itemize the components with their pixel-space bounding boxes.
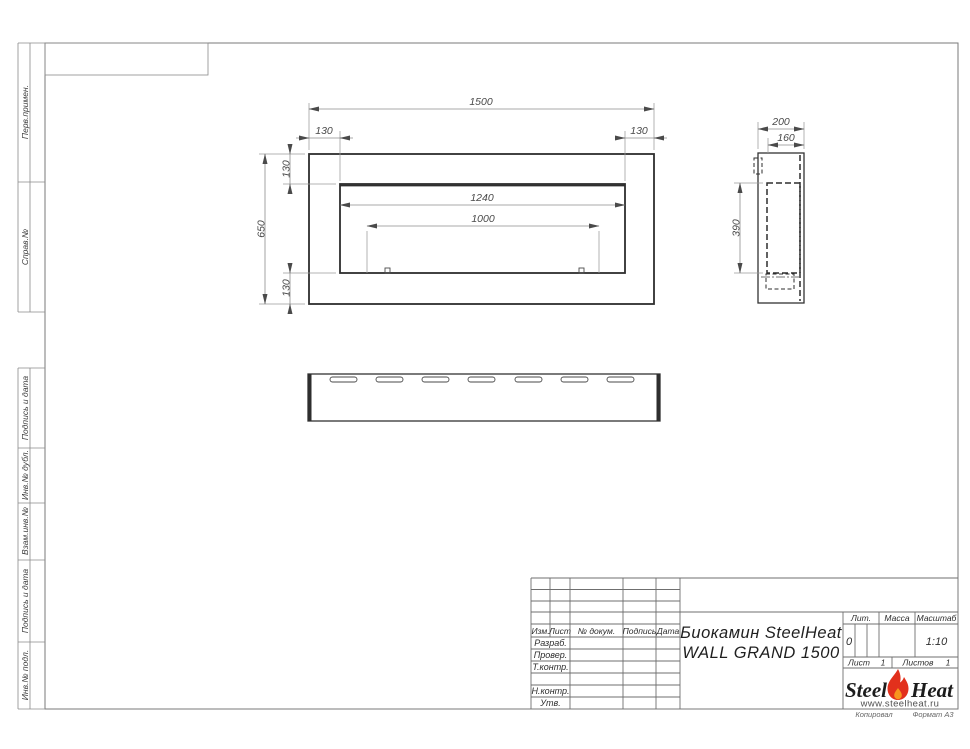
dim-front-width: 1500 xyxy=(309,96,654,150)
drawing-sheet: Перв.примен. Справ.№ Подпись и дата Инв.… xyxy=(0,0,970,749)
document-name-line2: WALL GRAND 1500 xyxy=(682,644,840,662)
dim-front-opening-width-value: 1240 xyxy=(470,192,494,204)
tb-sheets-label: Листов xyxy=(902,658,935,668)
dim-front-height-value: 650 xyxy=(256,220,268,238)
dim-front-inset-left-value: 130 xyxy=(315,125,333,137)
steelheat-logo: Steel Heat www.steelheat.ru xyxy=(845,669,954,710)
front-view: 1500 130 130 650 1 xyxy=(256,96,668,311)
strip-label-sprav-no: Справ.№ xyxy=(20,229,30,265)
vent-slot xyxy=(376,377,403,382)
side-outer-contour xyxy=(758,153,804,303)
drawing-canvas: Перв.примен. Справ.№ Подпись и дата Инв.… xyxy=(0,0,970,749)
strip-label-inv-podl: Инв.№ подл. xyxy=(20,650,30,700)
tb-sheet-label: Лист xyxy=(847,658,870,668)
dim-front-opening-width: 1240 xyxy=(340,192,625,205)
tb-lit-value: 0 xyxy=(846,636,853,648)
dim-front-inset-right-value: 130 xyxy=(630,125,648,137)
tb-header-data: Дата xyxy=(656,626,680,636)
vent-slot xyxy=(607,377,634,382)
tb-row-nkontr: Н.контр. xyxy=(531,686,569,696)
side-hidden-opening xyxy=(767,183,800,273)
vent-slot xyxy=(468,377,495,382)
tb-row-razrab: Разраб. xyxy=(534,638,567,648)
flame-icon xyxy=(888,669,909,700)
dim-front-inset-bottom-value: 130 xyxy=(281,279,293,297)
side-view: 200 160 390 xyxy=(731,116,805,303)
strip-label-podpis-data-1: Подпись и дата xyxy=(20,376,30,441)
sheet-footer: Копировал Формат А3 xyxy=(855,710,954,719)
strip-label-perv-primen: Перв.примен. xyxy=(20,85,30,139)
vent-slot xyxy=(561,377,588,382)
bottom-view xyxy=(308,374,660,421)
front-outer-contour xyxy=(309,154,654,304)
dim-front-inset-right: 130 xyxy=(617,125,667,181)
tb-scale-value: 1:10 xyxy=(926,636,948,648)
strip-label-podpis-data-2: Подпись и дата xyxy=(20,569,30,634)
tb-row-utv: Утв. xyxy=(539,698,560,708)
document-name-line1: Биокамин SteelHeat xyxy=(680,624,843,642)
tb-mass-label: Масса xyxy=(884,613,909,623)
bottom-vent-slots xyxy=(330,377,634,382)
side-burner-box xyxy=(766,274,794,289)
tb-lit-label: Лит. xyxy=(850,613,871,623)
dim-front-inset-left: 130 xyxy=(296,125,353,181)
frame-border xyxy=(45,43,958,709)
footer-format-label: Формат А3 xyxy=(912,710,954,719)
strip-label-inv-dubl: Инв.№ дубл. xyxy=(20,450,30,500)
dim-side-inner-depth-value: 160 xyxy=(777,132,795,144)
tb-sheets-value: 1 xyxy=(946,658,951,668)
vent-slot xyxy=(515,377,542,382)
dim-side-inner-depth: 160 xyxy=(768,132,804,153)
dim-side-opening-height-value: 390 xyxy=(731,219,743,237)
vent-slot xyxy=(330,377,357,382)
sheet-frame xyxy=(45,43,958,709)
tb-row-tkontr: Т.контр. xyxy=(532,662,568,672)
tb-header-podpis: Подпись xyxy=(623,626,657,636)
dim-front-burner-width-value: 1000 xyxy=(471,213,495,225)
tb-header-doc: № докум. xyxy=(578,626,615,636)
tb-scale-label: Масштаб xyxy=(917,613,958,623)
dim-front-burner-width: 1000 xyxy=(367,213,599,273)
tb-header-list: Лист xyxy=(548,626,571,636)
strip-label-vzam-inv: Взам.инв.№ xyxy=(20,507,30,555)
footer-copied-label: Копировал xyxy=(855,710,893,719)
bottom-end-left xyxy=(308,374,312,421)
dim-front-width-value: 1500 xyxy=(469,96,493,108)
dim-side-depth-value: 200 xyxy=(771,116,790,128)
strip-group-top-grid xyxy=(18,43,45,312)
vent-slot xyxy=(422,377,449,382)
dim-front-inset-top-value: 130 xyxy=(281,160,293,178)
tb-sheet-value: 1 xyxy=(881,658,886,668)
tb-row-prover: Провер. xyxy=(534,650,568,660)
top-left-box xyxy=(45,43,208,75)
logo-site-url: www.steelheat.ru xyxy=(860,699,940,710)
tb-header-izm: Изм. xyxy=(531,626,549,636)
bottom-end-right xyxy=(657,374,661,421)
left-margin-strips: Перв.примен. Справ.№ Подпись и дата Инв.… xyxy=(18,43,45,709)
title-block: Изм. Лист № докум. Подпись Дата Разраб. … xyxy=(531,578,958,710)
